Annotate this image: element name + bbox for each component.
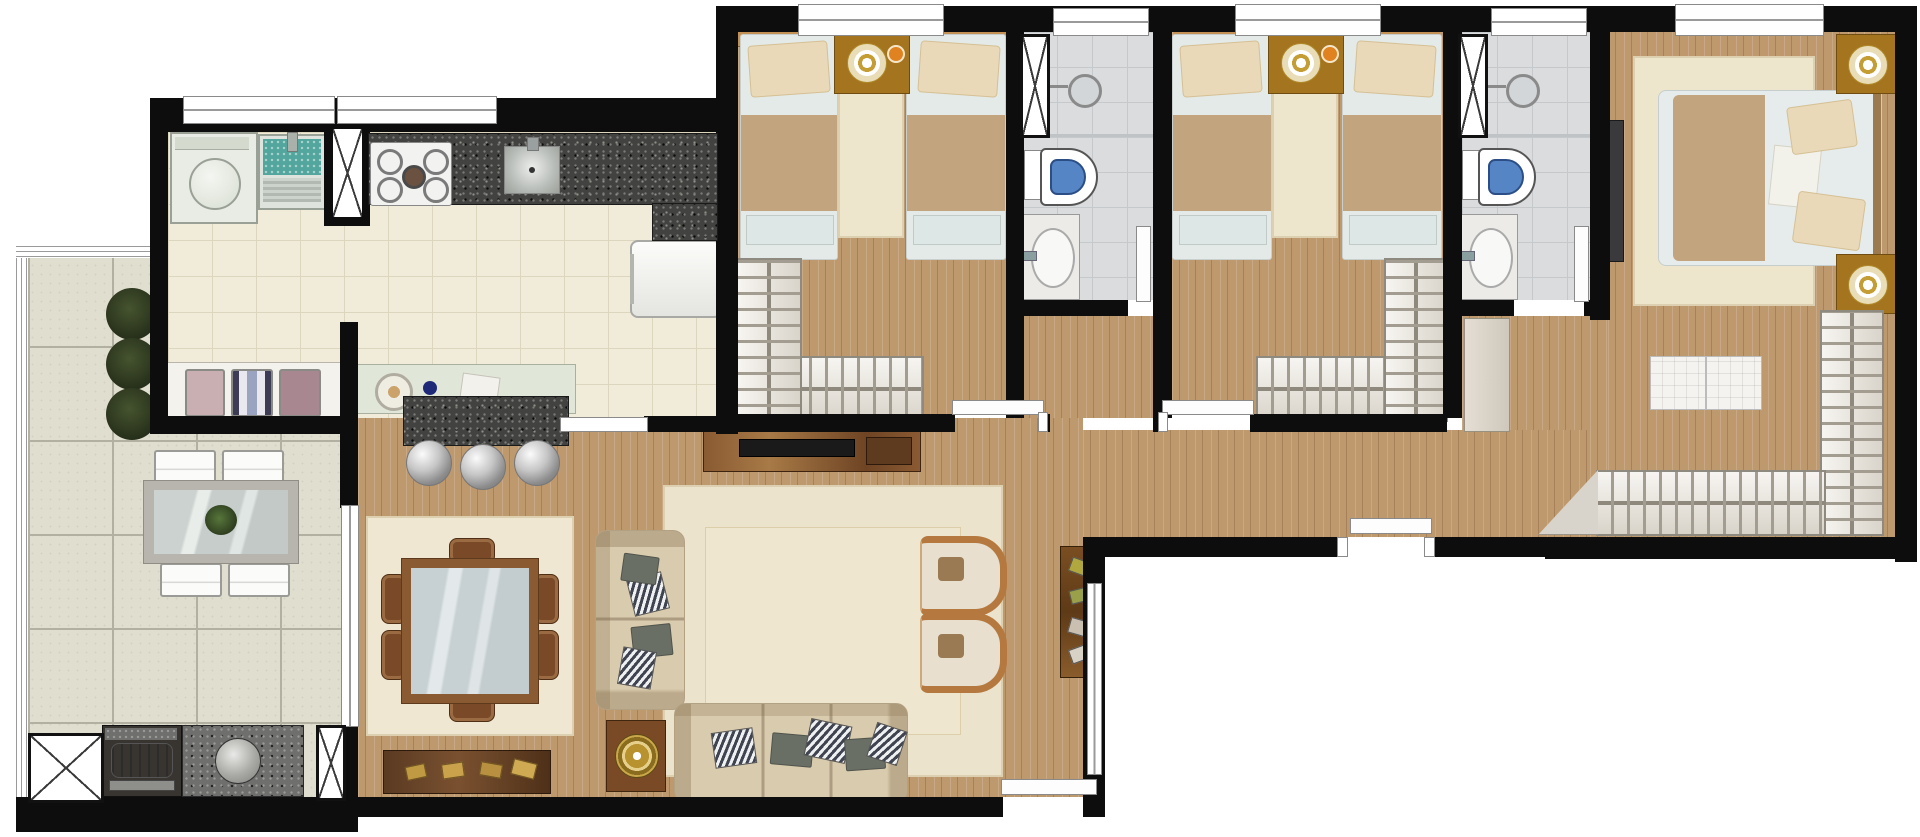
bedroom1-lamp xyxy=(847,43,887,83)
barbecue-grill xyxy=(102,725,182,797)
bed2r-footer xyxy=(1349,215,1437,245)
loveseat-pillow-2 xyxy=(620,553,660,586)
bedroom2-bottom-wall-b xyxy=(1250,414,1447,432)
bed2l-footer xyxy=(1179,215,1267,245)
bedroom1-bottom-wall-a xyxy=(735,414,955,432)
dining-table xyxy=(401,558,539,704)
refrigerator-handle xyxy=(630,254,634,304)
grill-top-granite xyxy=(105,728,177,740)
sofa[interactable] xyxy=(674,703,908,803)
tv-decor xyxy=(866,437,912,465)
kitchen-left-wall xyxy=(150,98,168,434)
armchair-1-cushion xyxy=(938,557,964,581)
bed1l-blanket xyxy=(741,115,837,211)
bedroom2-nightstand xyxy=(1268,34,1344,94)
living-terrace-door[interactable] xyxy=(1001,779,1097,795)
master-wardrobe-side xyxy=(1820,310,1884,536)
pass-through-sill xyxy=(560,417,648,432)
bar-stool-3[interactable] xyxy=(514,440,560,486)
grill-tray xyxy=(109,780,175,791)
kitchen-faucet xyxy=(527,137,539,151)
elevator-shaft xyxy=(28,733,104,803)
bedroom2-lamp xyxy=(1281,43,1321,83)
kitchen-pillar-duct xyxy=(333,129,362,217)
burner-4 xyxy=(423,177,449,203)
grill-grate xyxy=(111,743,173,778)
master-headboard xyxy=(1873,91,1881,265)
master-bottom-wall xyxy=(1545,537,1917,559)
bedroom2-bed-left[interactable] xyxy=(1172,34,1272,260)
towel-blue xyxy=(231,369,273,417)
bed1r-blanket xyxy=(907,115,1005,211)
bed1l-footer xyxy=(746,215,834,245)
bed2r-blanket xyxy=(1343,115,1441,211)
towel-pink xyxy=(185,369,225,417)
living-bottom-wall-a xyxy=(352,797,1003,817)
washer-panel xyxy=(175,137,249,150)
hall-linen-cabinet xyxy=(1464,318,1510,432)
loveseat-pillow-4 xyxy=(617,646,657,689)
console-item-2 xyxy=(441,762,465,780)
bathroom1-vanity xyxy=(1022,214,1080,300)
console-item-4 xyxy=(510,758,537,779)
master-window xyxy=(1675,4,1824,36)
bedroom1-door[interactable] xyxy=(952,400,1044,415)
dining-table-glass xyxy=(411,568,529,694)
burner-center xyxy=(402,165,426,189)
cooktop xyxy=(370,142,452,206)
bedroom2-door[interactable] xyxy=(1162,400,1254,415)
terrace-duct-column xyxy=(316,725,346,801)
media-console xyxy=(383,750,551,794)
tv-screen xyxy=(739,439,855,457)
master-lamp-bottom xyxy=(1848,265,1888,305)
living-right-window xyxy=(1087,583,1102,775)
bed2l-pillow xyxy=(1179,40,1262,97)
terrace-chair-3[interactable] xyxy=(160,563,222,597)
armchair-1[interactable] xyxy=(920,536,1007,616)
bedroom1-nightstand-dish xyxy=(887,45,905,63)
bed1l-pillow xyxy=(747,40,830,97)
corridor-bottom-wall-b xyxy=(1430,537,1550,557)
kitchen-pass-wall-b xyxy=(644,416,716,432)
towel-mauve xyxy=(279,369,321,417)
laundry-faucet xyxy=(287,132,298,152)
counter-bowl xyxy=(423,381,437,395)
entrance-door[interactable] xyxy=(1350,518,1432,534)
master-nightstand-top xyxy=(1836,34,1898,94)
bathroom2-basin xyxy=(1469,228,1513,288)
kitchen-dining-partition xyxy=(340,322,358,508)
master-nightstand-bottom xyxy=(1836,254,1898,314)
bathroom2-shaft xyxy=(1458,34,1488,138)
bar-stool-2[interactable] xyxy=(460,444,506,490)
bathroom2-shower-head xyxy=(1506,74,1540,108)
master-tv-panel xyxy=(1608,120,1624,262)
breakfast-bar xyxy=(403,396,569,446)
terrace-railing-top xyxy=(16,246,156,258)
master-bed[interactable] xyxy=(1658,90,1882,266)
console-item-1 xyxy=(405,763,427,781)
terrace-chair-1[interactable] xyxy=(154,450,216,484)
master-pillow-1 xyxy=(1786,99,1858,156)
bathroom1-window xyxy=(1053,8,1149,36)
master-bed-blanket xyxy=(1673,95,1765,261)
master-left-wall xyxy=(1590,28,1610,320)
console-item-3 xyxy=(479,761,503,779)
laundry-washboard xyxy=(263,178,321,202)
kitchen-bedroom1-shared-wall xyxy=(716,6,738,434)
master-wardrobe-bottom xyxy=(1596,470,1826,536)
bbq-counter xyxy=(182,725,304,797)
bar-stool-1[interactable] xyxy=(406,440,452,486)
bedroom2-wardrobe-bottom xyxy=(1256,356,1390,422)
bathroom2-toilet-bowl[interactable] xyxy=(1478,148,1536,206)
bed1r-pillow xyxy=(917,40,1000,97)
bedroom2-nightstand-dish xyxy=(1321,45,1339,63)
bathroom2-faucet xyxy=(1461,251,1475,261)
kitchen-sink-drain xyxy=(529,167,535,173)
bed2r-pillow xyxy=(1353,40,1436,97)
bed1r-footer xyxy=(913,215,1001,245)
bedroom2-bed-right[interactable] xyxy=(1342,34,1442,260)
side-table-gold-tray xyxy=(615,734,659,778)
towel-shelf xyxy=(166,362,344,418)
kitchen-counter-return xyxy=(652,203,718,241)
bedroom2-door-hinge xyxy=(1158,412,1168,432)
bathroom2-door[interactable] xyxy=(1574,226,1589,302)
bathroom1-shaft xyxy=(1020,34,1050,138)
bed2l-blanket xyxy=(1173,115,1271,211)
entrance-door-jamb-right xyxy=(1424,537,1435,557)
refrigerator xyxy=(630,240,722,318)
terrace-table xyxy=(143,480,299,564)
washing-machine xyxy=(170,132,258,224)
bedroom1-door-hinge xyxy=(1038,412,1048,432)
sofa-pillow-1 xyxy=(711,727,758,768)
bathroom1-toilet-bowl[interactable] xyxy=(1040,148,1098,206)
terrace-table-plant xyxy=(205,505,237,535)
bathroom1-bottom-wall xyxy=(1022,300,1128,316)
side-table-base xyxy=(606,720,666,792)
bedroom2-wardrobe-side xyxy=(1384,258,1448,422)
terrace-chair-2[interactable] xyxy=(222,450,284,484)
master-ottoman-1[interactable] xyxy=(1650,356,1706,410)
bathroom2-bottom-wall-a xyxy=(1462,300,1514,316)
washer-door xyxy=(189,158,241,210)
floor-plan-canvas xyxy=(0,0,1920,837)
bathroom1-shower-head xyxy=(1068,74,1102,108)
armchair-2[interactable] xyxy=(920,613,1007,693)
bathroom1-door[interactable] xyxy=(1136,226,1151,302)
laundry-tub xyxy=(258,134,330,210)
terrace-sliding-door[interactable] xyxy=(341,505,359,727)
bathroom1-faucet xyxy=(1023,251,1037,261)
bathroom1-basin xyxy=(1031,228,1075,288)
bathroom1-toilet-seat xyxy=(1050,159,1086,195)
bedroom1-wardrobe-side xyxy=(736,258,802,422)
bedroom1-nightstand xyxy=(834,34,910,94)
laundry-window xyxy=(183,96,335,124)
master-lamp-top xyxy=(1848,45,1888,85)
bathroom2-window xyxy=(1491,8,1587,36)
bedroom1-bed-right[interactable] xyxy=(906,34,1006,260)
bathroom1-right-wall xyxy=(1153,28,1172,418)
bedroom1-wardrobe-bottom xyxy=(794,356,924,422)
bathroom2-vanity xyxy=(1460,214,1518,300)
bedroom1-bed-left[interactable] xyxy=(740,34,838,260)
bedroom1-window xyxy=(798,4,944,36)
burner-2 xyxy=(377,177,403,203)
master-ottoman-2[interactable] xyxy=(1706,356,1762,410)
right-outer-wall xyxy=(1895,6,1917,562)
living-bottom-wall-b xyxy=(1093,797,1105,817)
loveseat[interactable] xyxy=(595,530,685,710)
entrance-door-jamb-left xyxy=(1337,537,1348,557)
terrace-railing-left xyxy=(16,246,28,832)
tv-sideboard xyxy=(703,430,921,472)
kitchen-sink xyxy=(504,146,560,194)
master-pillow-2 xyxy=(1792,191,1867,252)
bathroom2-toilet-seat xyxy=(1488,159,1524,195)
kitchen-window xyxy=(337,96,497,124)
burner-3 xyxy=(423,149,449,175)
kitchen-bottom-left-wall xyxy=(150,416,356,434)
bedroom2-window xyxy=(1235,4,1381,36)
terrace-chair-4[interactable] xyxy=(228,563,290,597)
bbq-counter-sink xyxy=(215,738,261,784)
corridor-bottom-wall-a xyxy=(1083,537,1337,557)
burner-1 xyxy=(377,149,403,175)
hallway-floor xyxy=(1083,430,1590,537)
armchair-2-cushion xyxy=(938,634,964,658)
